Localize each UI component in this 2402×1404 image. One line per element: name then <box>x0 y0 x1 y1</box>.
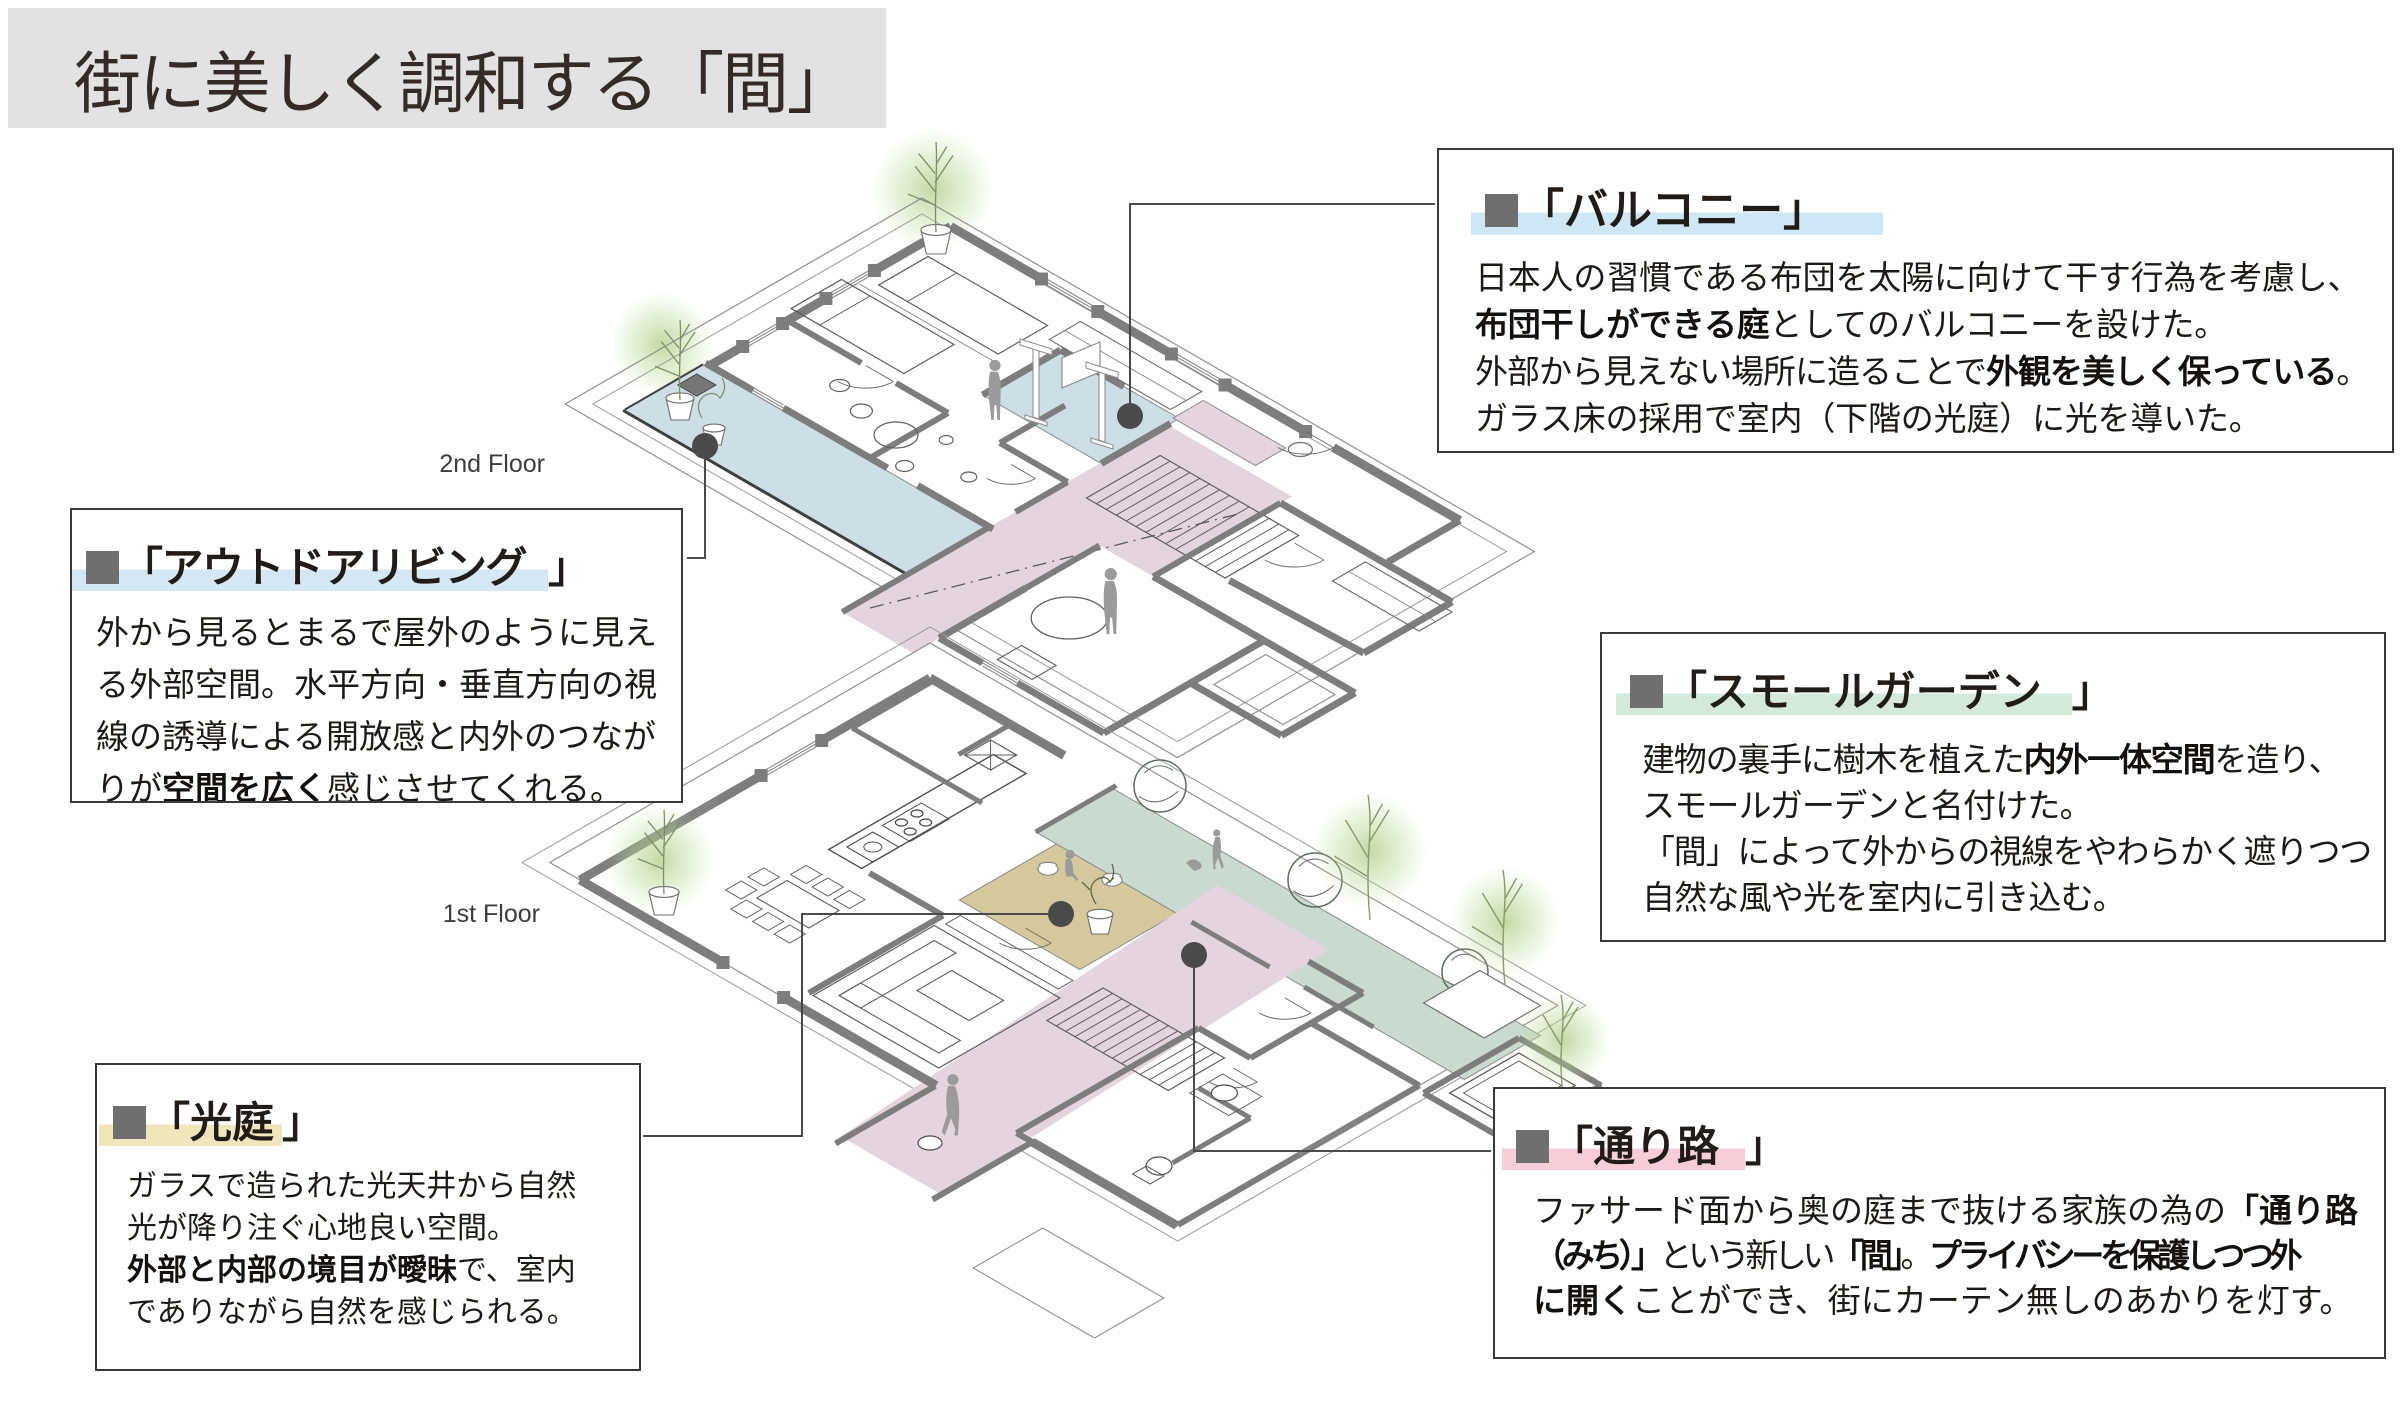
svg-text:2nd Floor: 2nd Floor <box>439 450 545 478</box>
svg-text:1st Floor: 1st Floor <box>443 900 540 928</box>
